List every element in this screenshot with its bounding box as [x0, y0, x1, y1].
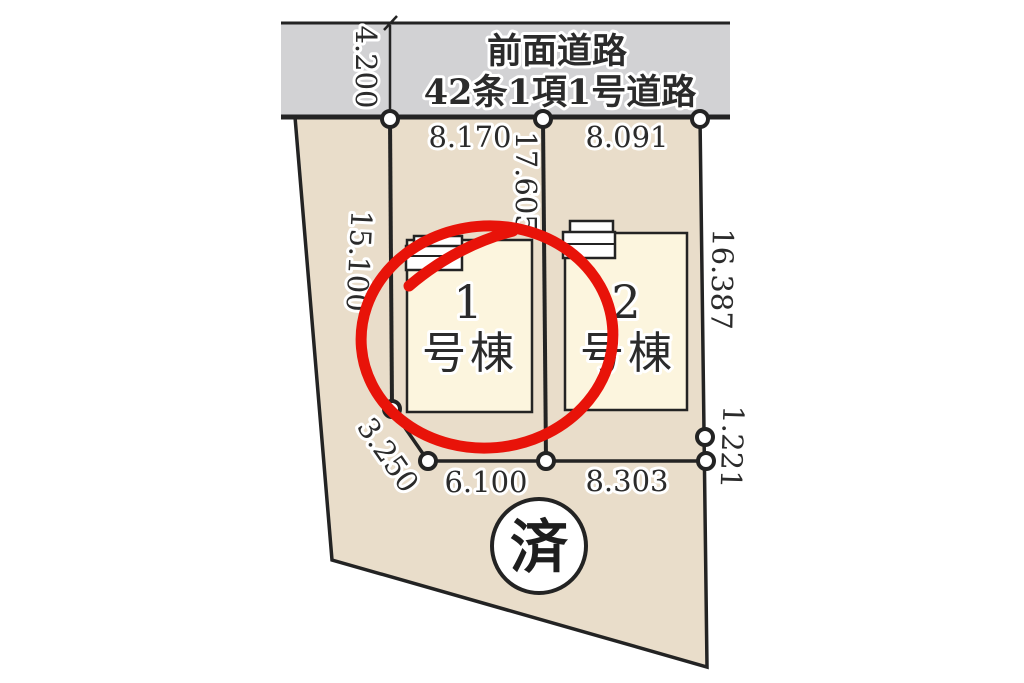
- boundary-node: [382, 111, 398, 127]
- dim-right-side-upper: 16.387: [704, 228, 740, 330]
- sold-stamp: 済: [492, 499, 586, 593]
- building-2-label: 号棟: [580, 328, 676, 379]
- road-name-line1: 前面道路: [487, 31, 628, 72]
- boundary-node: [538, 453, 554, 469]
- boundary-node: [535, 111, 551, 127]
- dim-frontage-lot2: 8.091: [585, 120, 668, 154]
- road-name-line2: 42条1項1号道路: [424, 72, 697, 113]
- boundary-node: [697, 429, 713, 445]
- dim-bottom-lot2: 8.303: [585, 464, 668, 498]
- dim-frontage-lot1: 8.170: [428, 120, 511, 154]
- dim-bottom-lot1: 6.100: [444, 465, 527, 499]
- dim-right-side-lower: 1.221: [714, 405, 751, 489]
- site-plan-diagram: 1 号棟 2 号棟 前面道路 42条1項1号道路 4.200 8.170 8.0…: [0, 0, 1024, 683]
- sold-stamp-label: 済: [510, 513, 569, 581]
- boundary-node: [698, 453, 714, 469]
- dim-road-width: 4.200: [349, 25, 383, 108]
- boundary-node: [692, 111, 708, 127]
- building-1-label: 号棟: [422, 328, 518, 379]
- building-1-number: 1: [453, 275, 482, 329]
- site-plan-svg: 1 号棟 2 号棟 前面道路 42条1項1号道路 4.200 8.170 8.0…: [0, 0, 1024, 683]
- boundary-node: [420, 453, 436, 469]
- dim-center-divider: 17.605: [509, 131, 543, 232]
